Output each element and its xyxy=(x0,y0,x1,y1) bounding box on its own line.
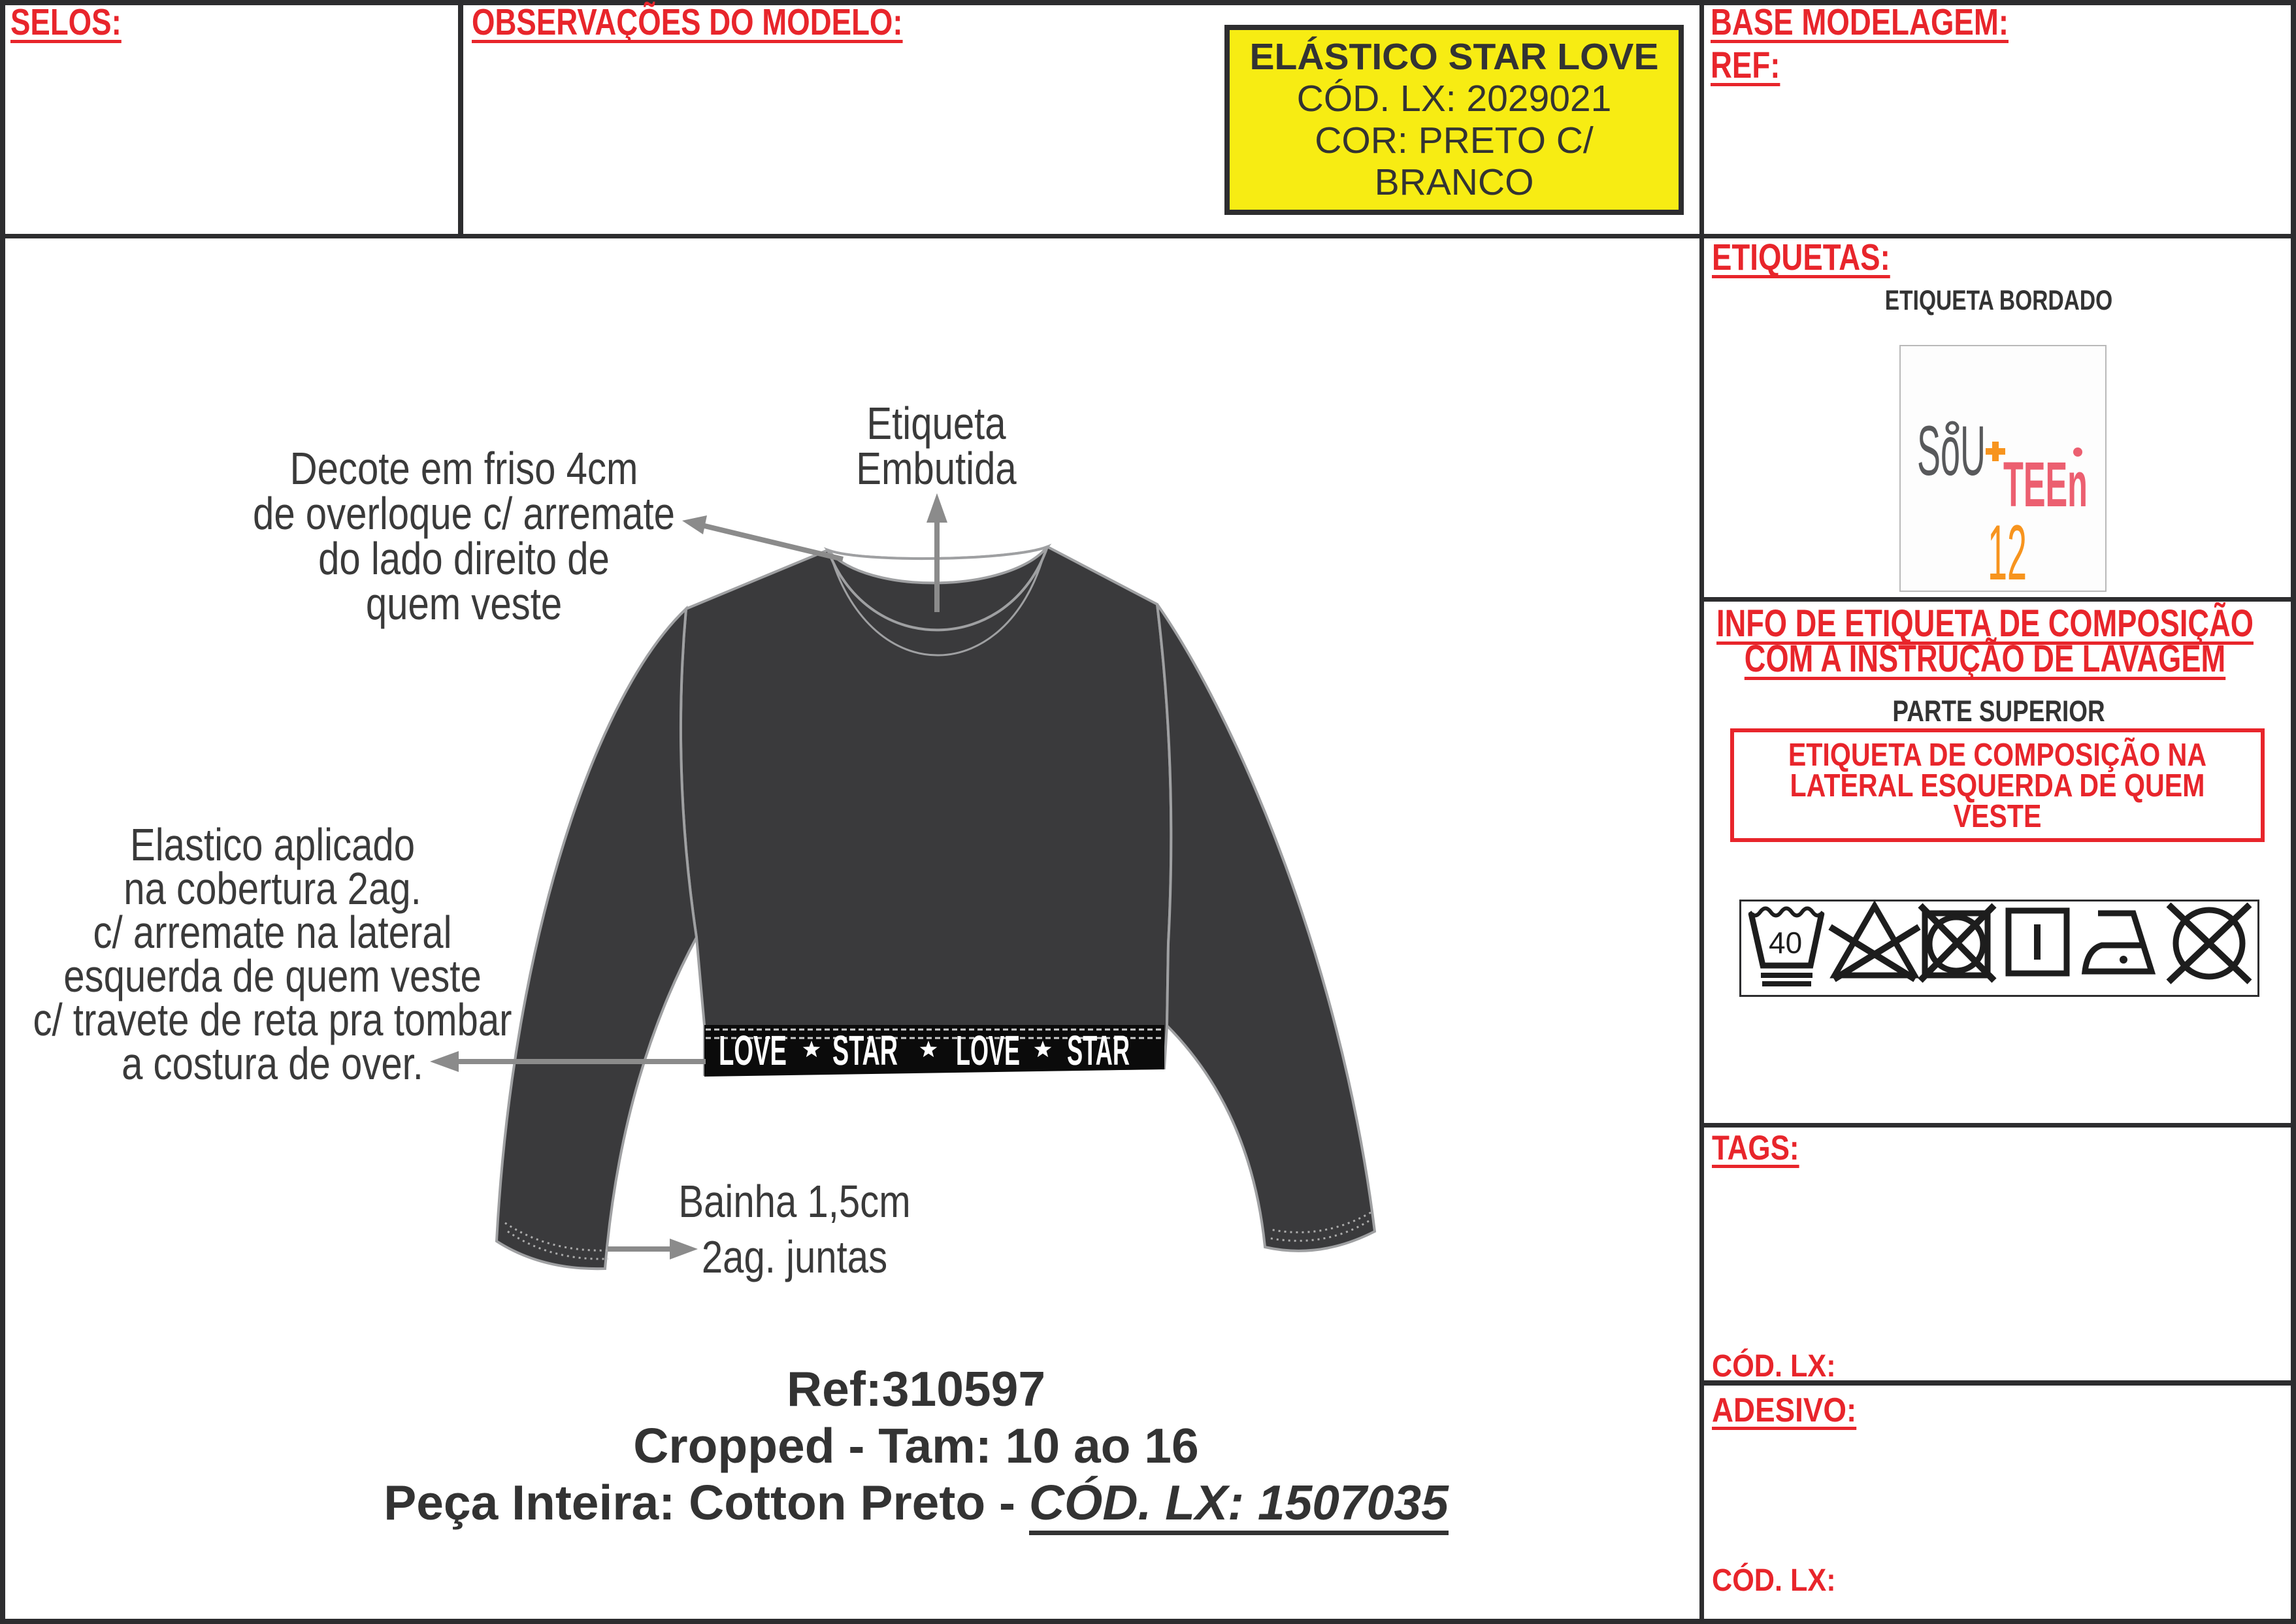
svg-text:LOVE: LOVE xyxy=(719,1027,787,1074)
svg-text:STAR: STAR xyxy=(1067,1027,1130,1074)
svg-text:STAR: STAR xyxy=(832,1027,898,1074)
svg-text:LOVE: LOVE xyxy=(956,1027,1020,1074)
